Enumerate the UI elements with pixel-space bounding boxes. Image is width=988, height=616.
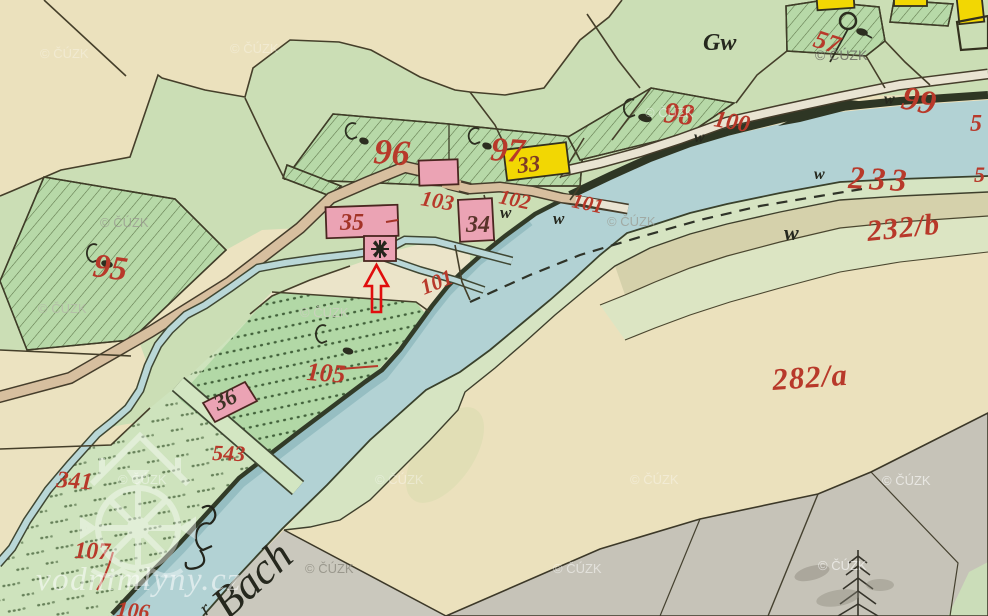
svg-text:33: 33 [515, 151, 541, 178]
svg-text:w: w [553, 209, 565, 228]
svg-text:© ČÚZK: © ČÚZK [300, 305, 349, 320]
svg-text:341: 341 [55, 467, 94, 496]
svg-text:vodnimlyny.cz: vodnimlyny.cz [36, 562, 242, 598]
svg-text:w: w [694, 129, 705, 146]
svg-text:5: 5 [970, 111, 982, 137]
svg-text:© ČÚZK: © ČÚZK [553, 561, 602, 576]
svg-text:Gw: Gw [703, 30, 737, 56]
svg-text:© ČÚZK: © ČÚZK [630, 472, 679, 487]
svg-text:35: 35 [339, 210, 364, 236]
svg-text:34: 34 [465, 212, 490, 238]
svg-text:© ČÚZK: © ČÚZK [607, 214, 656, 229]
svg-text:w: w [500, 203, 512, 222]
svg-text:w: w [814, 166, 825, 183]
svg-text:© ČÚZK: © ČÚZK [815, 47, 868, 63]
svg-text:© ČÚZK: © ČÚZK [305, 561, 354, 576]
svg-text:95: 95 [91, 247, 130, 288]
svg-text:96: 96 [372, 131, 411, 173]
svg-text:© ČÚZK: © ČÚZK [40, 46, 89, 61]
svg-text:© ČÚZK: © ČÚZK [645, 105, 694, 120]
svg-text:105: 105 [306, 357, 347, 389]
svg-text:© ČÚZK: © ČÚZK [818, 558, 867, 573]
svg-text:© ČÚZK: © ČÚZK [882, 473, 931, 488]
svg-text:© ČÚZK: © ČÚZK [38, 301, 87, 316]
svg-text:106: 106 [115, 596, 150, 616]
svg-text:233: 233 [847, 159, 913, 198]
svg-text:w: w [884, 91, 895, 108]
svg-text:© ČÚZK: © ČÚZK [230, 41, 279, 56]
svg-text:© ČÚZK: © ČÚZK [375, 472, 424, 487]
svg-text:w: w [784, 220, 799, 245]
svg-text:© ČÚZK: © ČÚZK [100, 215, 149, 230]
svg-text:5: 5 [974, 162, 985, 187]
svg-text:282/a: 282/a [770, 357, 849, 397]
svg-text:543: 543 [212, 440, 246, 466]
